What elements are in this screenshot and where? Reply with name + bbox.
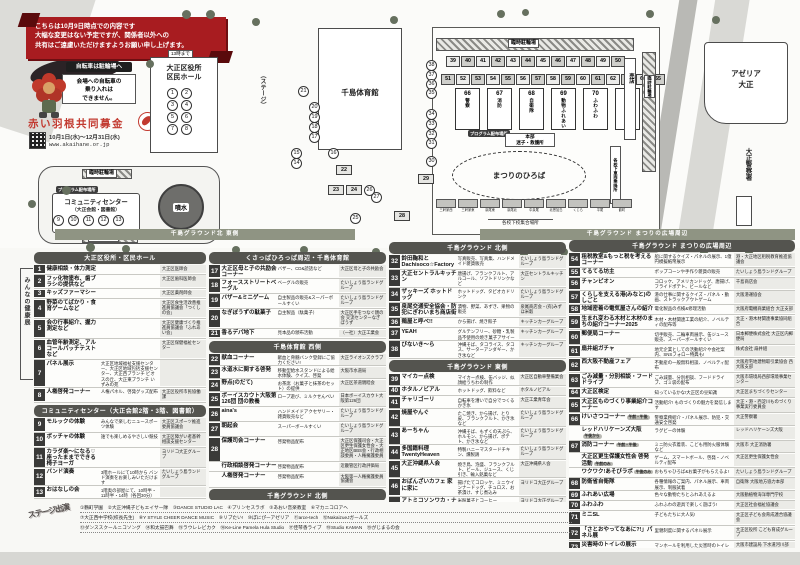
booth-org: 大正沖縄県人会 bbox=[519, 461, 566, 477]
map-big-booth-69: 69動物ふれあい bbox=[551, 88, 576, 130]
map-circle-8: 8 bbox=[181, 124, 192, 135]
booth-title: 行政相談啓発コーナー bbox=[222, 463, 277, 469]
health-expo-band: みんなの健康展 bbox=[20, 268, 33, 380]
booth-row: 38 びないき〜ら 沖縄そば、タコライス、タコス、サーターアンダギー、かき氷など… bbox=[389, 341, 566, 359]
booth-title: チャンピオン bbox=[582, 279, 654, 285]
map-circle-13: 13 bbox=[113, 215, 124, 226]
booth-desc: 自転車を漕いで自分でつくるかき氷 bbox=[458, 396, 519, 408]
booth-row: 57 くらしを支える港(みなと)のしごと 港の仕事に関するクイズ・パネル・動画、… bbox=[569, 291, 795, 305]
booth-number: 35 bbox=[389, 303, 400, 316]
booth-org: たいしょう島ランドグループ bbox=[519, 255, 566, 268]
booth-title: 献血コーナー bbox=[222, 355, 277, 361]
booth-title: 地域密着の電気屋さんの紹介 bbox=[582, 306, 654, 312]
booth-org bbox=[160, 487, 206, 498]
map-circle-7: 7 bbox=[167, 124, 178, 135]
booth-org: キッチンカーグループ bbox=[519, 341, 566, 357]
booth-desc: バザー、CD&読話など bbox=[278, 265, 339, 278]
map-booth-39: 39 bbox=[446, 56, 460, 67]
booth-number: 18 bbox=[209, 279, 220, 292]
booth-org: たいしょう島ランドグループ bbox=[339, 294, 386, 307]
booth-title: マイカー点検 bbox=[402, 374, 457, 380]
tree-icon bbox=[146, 60, 154, 68]
ward-office-label: 大正区役所 区民ホール bbox=[151, 64, 217, 82]
booth-desc: ふわふわの遊具で楽しく遊ぼう! bbox=[655, 501, 735, 510]
booth-number: 8 bbox=[34, 389, 45, 402]
booth-row: 65 大正区ものづくり事業紹介コーナー 活動紹介! ものづくりの魅力を発信します… bbox=[569, 398, 795, 413]
booth-number: 73 bbox=[569, 542, 580, 548]
booth-desc: 警察業務紹介・パネル展示、防犯・交通安全啓発 bbox=[655, 413, 735, 425]
booth-org: レッドハリケーンズ大阪 bbox=[734, 427, 795, 439]
booth-desc: 自主製品の販売&スーパーボールすくい bbox=[278, 294, 339, 308]
booth-org: 大正工業青年会 bbox=[519, 397, 566, 408]
booth-row: 27 朝起会 スーパーボールすくい たいしょう島ランドグループ bbox=[209, 422, 386, 437]
booth-org: 大正区子ども会育成連合協議会 bbox=[734, 512, 795, 525]
booth-row: 44 多国籍料理 TwentyHeaven 特製ハニーマスタードチキン、燻製鶏 … bbox=[389, 445, 566, 460]
booth-title: aina's bbox=[222, 408, 277, 414]
booth-row: 7 パネル展示 大正区地域福祉支援センター、大正区地域包括支援センター、大正西ブ… bbox=[34, 360, 206, 388]
map-booth-44: 44 bbox=[521, 56, 535, 67]
booth-number: 20 bbox=[209, 310, 220, 328]
booth-desc: ミニ防火衣着装、こども用防火服体験など bbox=[655, 441, 735, 453]
booth-title: びないき〜ら bbox=[402, 342, 457, 348]
section-header: 千島グラウンド まつりの広場周辺 bbox=[569, 240, 795, 252]
booth-number: 54 bbox=[569, 253, 580, 266]
booth-title: 鈴田鞠和とDachisoco☆Factory bbox=[402, 256, 457, 268]
booth-row: 18 フォースストリートベーグル ベーグルの販売 たいしょう島ランドグループ bbox=[209, 279, 386, 294]
map-mark-29: 29 bbox=[418, 174, 434, 184]
time-tag: 午前・午後 bbox=[627, 415, 650, 419]
map-booth-49: 49 bbox=[596, 56, 610, 67]
booth-title: バンド演奏 bbox=[47, 469, 100, 475]
stage-program-line: ⑬ダンススクールニコソング ⑭和太鼓巴舞 ⑮ラウレレビカク ⑯Ke-Line P… bbox=[80, 523, 572, 533]
map-big-booth-67: 67消防 bbox=[487, 88, 512, 130]
school-tent: 泉尾東 bbox=[480, 199, 500, 213]
map-booth-53: 53 bbox=[471, 74, 485, 85]
booth-desc: ごみ減量、分別相談、フードドライブ、ゴミ袋の配布 bbox=[655, 373, 735, 387]
booth-title: 大正区検定 bbox=[582, 389, 654, 395]
booth-number: 40 bbox=[389, 387, 400, 395]
booth-title: 血管年齢測定、アルコールパッチテストなど bbox=[47, 340, 100, 358]
booth-desc: 1階奥の部屋にて、10時半・11時半・14時（各回30分） bbox=[101, 486, 160, 498]
booth-row: 39 マイカー点検 マイカー点検、缶バッジ、似顔絵うちわの制作 大正区自動車整備… bbox=[389, 373, 566, 386]
booth-org: 大阪府宅地建物取引業協会 西大阪支部 bbox=[734, 359, 795, 372]
booth-title: ミニSL bbox=[582, 512, 654, 518]
booth-org: 大正区健康づくり推進員協議会「ふれあい会」 bbox=[160, 320, 206, 338]
map-circle-9: 9 bbox=[53, 215, 64, 226]
booth-desc: 港の仕事に関するクイズ・パネル・動画、ストラックアウトゲーム bbox=[655, 291, 735, 304]
map-booth-41: 41 bbox=[476, 56, 490, 67]
booth-row: 43 あーちゃん 沖縄そば、もずくの天ぷら、ホルモン、から揚げ、ポテト、かき氷な… bbox=[389, 427, 566, 445]
booth-desc: 誰でも楽しめるやさしい競技 bbox=[101, 433, 160, 447]
community-center-building: コミュニティセンター （大正会館・図書館） 910111213 bbox=[52, 193, 140, 233]
community-center-label: コミュニティセンター bbox=[53, 197, 139, 206]
booth-org: 大正区自動車整備業会 bbox=[519, 374, 566, 385]
booth-number: 45 bbox=[389, 461, 400, 477]
booth-number: 23 bbox=[209, 367, 220, 378]
booth-row: 60 郵便局コーナー 切手販売、二輪車両展示、缶ジュース販売、スーパーボールすく… bbox=[569, 330, 795, 345]
booth-number: 22 bbox=[209, 354, 220, 365]
booth-row: 36 鶏屋と呼べ!! から揚げ、焼き餃子 キッチンカーグループ bbox=[389, 318, 566, 328]
map-circle-12: 12 bbox=[98, 215, 109, 226]
booth-org: 大正区役所 こども育成グループ bbox=[734, 527, 795, 540]
tree-icon bbox=[497, 10, 505, 18]
booth-org: 大阪市 大正消防署 bbox=[734, 441, 795, 452]
ward-office-building: 大正区役所 区民ホール 12345678 bbox=[150, 57, 218, 153]
booth-number: 39 bbox=[389, 374, 400, 385]
booth-org: 大正区医師会 bbox=[160, 265, 206, 273]
booth-title: モルックの体験 bbox=[47, 419, 100, 425]
list-column-4: 千島グラウンド まつりの広場周辺 54 租税教室&もっと税を考えるコーナー 船に… bbox=[569, 238, 795, 548]
ground-strip-left: 千島グラウンド北 東側 bbox=[55, 229, 355, 240]
booth-number: 41 bbox=[389, 397, 400, 408]
booth-desc: お茶席（お菓子と抹茶のセット）の提供 bbox=[278, 379, 339, 391]
booth-org: 泉尾商店会・(有)みずほ米穀 bbox=[519, 303, 566, 316]
booth-row: 54 租税教室&もっと税を考えるコーナー 船に関するクイズ・パネルの展示、1億円… bbox=[569, 253, 795, 268]
booth-title: おはなしの会 bbox=[47, 487, 100, 493]
map-booth-46: 46 bbox=[551, 56, 565, 67]
booth-desc: ハンドメイドアクセサリー・雑貨販売など bbox=[278, 407, 339, 421]
school-tent: 泉尾北 bbox=[502, 199, 522, 213]
gym-label: 千島体育館 bbox=[319, 87, 401, 98]
booth-desc: ホットドッグ、飲料など bbox=[458, 386, 519, 395]
booth-desc: 焼き鳥、泡盛、フランクフルト、ビール、ジュース、くじ引き、輸入銘菓など bbox=[458, 460, 519, 477]
booth-title: 大正沖縄県人会 bbox=[402, 461, 457, 467]
booth-desc: ホットドッグ、タピオカドリンク bbox=[458, 288, 519, 302]
booth-number bbox=[209, 473, 220, 486]
booth-row: ワクワク!あそびラボ午後のみ おもちゃひろば&お菓子がもらえるよ! たいしょう島… bbox=[569, 468, 795, 478]
booth-desc: グルテンフリー、砂糖・乳製品不使用の焼き菓子アサイー bbox=[458, 328, 519, 340]
booth-row: 9 モルックの体験 みんなで楽しむニュースポーツ体験 大正区スポーツ推進委員協議… bbox=[34, 418, 206, 433]
mascot-flower-character bbox=[26, 66, 72, 120]
booth-title: ワクワク!あそびラボ午後のみ bbox=[582, 469, 654, 475]
booth-desc: 不動産の一般無料相談、ノベルティ配布 bbox=[655, 358, 735, 372]
map-mark-17: 17 bbox=[309, 132, 320, 143]
booth-row: 12 バンド演奏 3階ホールにて10時から バンド演奏をお楽しみいただけます た… bbox=[34, 468, 206, 486]
booth-title: バザー&ミニゲーム bbox=[222, 295, 277, 301]
booth-org: ヨリドコ大正グループ bbox=[160, 448, 206, 466]
map-circle-2: 2 bbox=[181, 88, 192, 99]
map-booth-61: 61 bbox=[591, 74, 605, 85]
booth-org: たいしょう島ランドグループ bbox=[519, 446, 566, 459]
booth-row: 59 生まれ変わる木材と木材のまちの紹介コーナー2025 木材・木材関連工業の紹… bbox=[569, 315, 795, 330]
booth-number: 57 bbox=[569, 291, 580, 303]
booth-org: 大正区歯科医師会 bbox=[160, 275, 206, 287]
booth-number: 38 bbox=[389, 341, 400, 357]
booth-org: 大阪市環境局西部環境事業センター bbox=[734, 374, 795, 387]
booth-org: 大正区役所市民協働課 bbox=[160, 389, 206, 402]
booth-title: ふれあい広場 bbox=[582, 492, 654, 498]
booth-number: 64 bbox=[569, 389, 580, 397]
booth-row: 21 香るデパ地下 見本品の頒布活動 （一社）大正工業会 bbox=[209, 329, 386, 339]
tree-icon bbox=[646, 10, 654, 18]
booth-number: 4 bbox=[34, 300, 45, 318]
map-booth-59: 59 bbox=[561, 74, 575, 85]
gym-building: 千島体育館 bbox=[318, 28, 402, 150]
dropoff-label: 各校下車両乗降所 bbox=[610, 146, 621, 204]
map-booth-60: 60 bbox=[576, 74, 590, 85]
booth-org: 大正・港・西淀川ものづくり事業実行委員会 bbox=[734, 399, 795, 412]
school-tents: 三軒家西三軒家東泉尾東泉尾北中泉尾北恩加島くじら平尾鶴町 bbox=[436, 199, 632, 213]
booth-desc: ゲーム、スマートボール、啓発・ノベルティ配布 bbox=[655, 453, 735, 466]
time-tag: 午後から bbox=[583, 434, 602, 438]
notice-banner: こちらは10月9日時点での内容です 大幅な変更はない予定ですが、関係者以外への … bbox=[26, 17, 226, 59]
map-mark-16: 16 bbox=[328, 148, 339, 159]
map-circle-6: 6 bbox=[181, 112, 192, 123]
booth-number: 58 bbox=[569, 305, 580, 313]
map-mark-28: 28 bbox=[394, 211, 410, 221]
booth-number: 37 bbox=[389, 328, 400, 339]
list-column-1: 大正区役所・区民ホール 1 健康相談・体力測定 大正区医師会 2 フッ化物塗布、… bbox=[34, 250, 206, 500]
booth-desc bbox=[101, 319, 160, 338]
booth-number: 2 bbox=[34, 275, 45, 287]
community-center-sub: （大正会館・図書館） bbox=[53, 206, 139, 213]
booth-row: 70 ふわふわ ふわふわの遊具で楽しく遊ぼう! 大正区社会福祉協議会 bbox=[569, 501, 795, 511]
booth-row: 5 会の行事紹介、握力測定など 大正区健康づくり推進員協議会「ふれあい会」 bbox=[34, 319, 206, 339]
booth-desc: みんなで楽しむニュースポーツ体験 bbox=[101, 418, 160, 432]
booth-desc: 唐揚げ、フランクフルト、アルコール、ソフトドリンクなど bbox=[458, 270, 519, 287]
booth-row: 58 地域密着の電気屋さんの紹介 電化製品の点検&修理活動 大阪府電機商業組合 … bbox=[569, 305, 795, 315]
booth-title: カラダ楽〜になる♡座ったままでできる椅子ヨーガ bbox=[47, 449, 100, 467]
booth-org: 株式会社 扇井組 bbox=[734, 346, 795, 357]
booth-row: 62 西大阪不動産フェア 不動産の一般無料相談、ノベルティ配布 大阪府宅地建物取… bbox=[569, 358, 795, 373]
booth-title: 大正区母と子の共励会コーナー bbox=[222, 266, 277, 278]
booth-title: 防衛省自衛隊 bbox=[582, 479, 654, 485]
booth-desc: 里親制度に関するパネル展示 bbox=[655, 526, 735, 540]
booth-org: 大正区手をつなぐ親の会 交流センターなぎぼうず bbox=[339, 310, 386, 328]
map-mark-21: 21 bbox=[298, 86, 309, 97]
map-booth-57: 57 bbox=[531, 74, 545, 85]
booth-org: 大正区更生保護女性会 bbox=[734, 454, 795, 466]
bike-parking-label-v: 臨時駐輪場 bbox=[644, 75, 655, 98]
booth-number: 55 bbox=[569, 268, 580, 276]
booth-title: おばんざいカフェ 家に家に bbox=[402, 479, 457, 491]
qr-code bbox=[29, 132, 46, 149]
booth-row: 41 チャリゴーリ 自転車を漕いで自分でつくるかき氷 大正工業青年会 bbox=[389, 396, 566, 409]
booth-number: 10 bbox=[34, 433, 45, 446]
booth-title: ザッキーズ ホットドッグ bbox=[402, 289, 457, 301]
fountain-label: 噴水 bbox=[173, 203, 189, 212]
map-booth-56: 56 bbox=[516, 74, 530, 85]
booth-desc: 子どもたちに大人気! bbox=[655, 511, 735, 525]
map-circle-11: 11 bbox=[83, 215, 94, 226]
program-tag: プログラム配布場所 bbox=[468, 130, 510, 137]
booth-org: たいしょう島ランドグループ bbox=[519, 410, 566, 426]
booth-title: 災害時のトイレの展示 bbox=[582, 542, 654, 548]
booth-number: 43 bbox=[389, 428, 400, 444]
booth-row: 69 ふれあい広場 色々な動物たちとふれあえるよ 大阪動植物海洋専門学校 bbox=[569, 491, 795, 501]
tree-icon bbox=[712, 16, 720, 24]
booth-number: 6 bbox=[34, 340, 45, 358]
booth-desc: 献血と骨髄バンク登録にご協力ください! bbox=[278, 354, 339, 366]
akaihane-url: www.akaihane.or.jp bbox=[49, 141, 109, 148]
booth-desc: 大正区地域福祉支援センター、大正区地域包括支援センター、大正西ブランチ ビオスの… bbox=[101, 360, 160, 387]
bike-parking-label: 臨時駐輪場 bbox=[508, 39, 539, 48]
booth-row: 8 人権啓発コーナー 人権パネル、啓発グッズ配布 大正区役所市民協働課 bbox=[34, 388, 206, 403]
school-tent: 鶴町 bbox=[612, 199, 632, 213]
booth-desc: 活動紹介! ものづくりの魅力を発信します bbox=[655, 398, 735, 412]
police-label: 大正警察署 bbox=[742, 148, 752, 181]
booth-row: 47 アトミコソンワカ・ナンクルナイサー35くえもん 米粉菓子とコーヒー ヨリド… bbox=[389, 497, 566, 503]
fountain: 噴水 bbox=[158, 184, 204, 230]
booth-title: 郵便局コーナー bbox=[582, 331, 654, 337]
booth-org: たいしょう島ランドグループ bbox=[339, 423, 386, 436]
booth-desc bbox=[101, 275, 160, 288]
booth-number: 19 bbox=[209, 294, 220, 307]
stage-program-footnote: ①鶴町学園 ②大正沖縄子どもエイサー隊 ③DANCE STUDIO LAC ④プ… bbox=[80, 503, 572, 533]
time-tag: 午後のみ bbox=[634, 470, 653, 474]
booth-number: 47 bbox=[389, 497, 400, 502]
booth-title: キッズファーマシー bbox=[47, 290, 100, 296]
tree-icon bbox=[522, 9, 529, 16]
list-column-2: くさっぱひろっぱ周辺・千島体育館 17 大正区母と子の共励会コーナー バザー、C… bbox=[209, 250, 386, 500]
booth-org: ホタルノビアル bbox=[519, 387, 566, 395]
map-booth-45: 45 bbox=[536, 56, 550, 67]
booth-number: 63 bbox=[569, 374, 580, 387]
booth-number: 33 bbox=[389, 270, 400, 286]
list-column-3: 千島グラウンド 北側 32 鈴田鞠和とDachisoco☆Factory 写真販… bbox=[389, 240, 566, 502]
stage-label: （ステージ） bbox=[258, 72, 267, 108]
booth-desc: 啓発物品配布 bbox=[278, 437, 339, 461]
booth-number: 32 bbox=[389, 255, 400, 268]
tree-icon bbox=[252, 18, 260, 26]
tree-icon bbox=[28, 200, 36, 208]
scanned-festival-flyer: こちらは10月9日時点での内容です 大幅な変更はない予定ですが、関係者以外への … bbox=[0, 0, 800, 565]
booth-desc: 知っているかな!大正区の豆知識 bbox=[655, 388, 735, 397]
section-header: 千島グラウンド 東側 bbox=[389, 360, 566, 372]
booth-org: たいしょう島ランドグループ bbox=[339, 408, 386, 421]
booth-desc: 人権パネル、啓発グッズ配布 bbox=[101, 388, 160, 402]
booth-org: 大正区母と子の共励会 bbox=[339, 265, 386, 277]
booth-desc: 啓発物品配布 bbox=[278, 462, 339, 471]
booth-row-39-50: 394041424344454647484950 bbox=[446, 56, 625, 67]
booth-title: くらしを支える港(みなと)のしごと bbox=[582, 292, 654, 304]
section-header: コミュニティセンター（大正会館2階・3階、図書館） bbox=[34, 405, 206, 417]
booth-title: けいさつコーナー午前・午後 bbox=[582, 414, 654, 420]
booth-desc: 電化製品の点検&修理活動 bbox=[655, 305, 735, 314]
booth-number: 27 bbox=[209, 423, 220, 436]
school-tent: 中泉尾 bbox=[524, 199, 544, 213]
map-mark-25: 25 bbox=[350, 213, 361, 224]
booth-title: 大正セントラルキッチン bbox=[402, 271, 457, 283]
map-mark-30: 30 bbox=[426, 156, 437, 167]
map-booth-48: 48 bbox=[581, 56, 595, 67]
booth-number: 12 bbox=[34, 469, 45, 485]
booth-desc bbox=[101, 448, 160, 467]
booth-row: 45 大正沖縄県人会 焼き鳥、泡盛、フランクフルト、ビール、ジュース、くじ引き、… bbox=[389, 460, 566, 478]
booth-title: 野点(のだて) bbox=[222, 380, 277, 386]
booth-row: 17 大正区母と子の共励会コーナー バザー、CD&読話など 大正区母と子の共励会 bbox=[209, 265, 386, 279]
booth-desc bbox=[101, 289, 160, 298]
booth-title: 香るデパ地下 bbox=[222, 330, 277, 336]
school-tent: 三軒家西 bbox=[436, 199, 456, 213]
booth-title: 人権啓発コーナー bbox=[47, 389, 100, 395]
booth-org: 大阪市建設局 下水道河川部 bbox=[734, 542, 795, 548]
booth-org: 大正区社会福祉協議会 bbox=[734, 501, 795, 509]
booth-number: 3 bbox=[34, 290, 45, 298]
booth-row: 3 キッズファーマシー 大正区薬剤師会 bbox=[34, 289, 206, 299]
booth-desc: 見本品の頒布活動 bbox=[278, 329, 339, 338]
booth-desc: マンホールを利用した災害時のトイレの展示 bbox=[655, 541, 735, 548]
booth-desc bbox=[101, 339, 160, 358]
section-header: くさっぱひろっぱ周辺・千島体育館 bbox=[209, 252, 386, 264]
booth-org: たいしょう島ランドグループ bbox=[339, 279, 386, 292]
booth-number: 11 bbox=[34, 448, 45, 466]
booth-number: 26 bbox=[209, 408, 220, 421]
booth-row: 73 災害時のトイレの展示 マンホールを利用した災害時のトイレの展示 大阪市建設… bbox=[569, 541, 795, 548]
booth-org: たいしょう島ランドグループ bbox=[519, 288, 566, 301]
booth-number: 62 bbox=[569, 359, 580, 372]
booth-desc: 船に関するクイズ・パネルの展示、1億円模擬紙幣展示 bbox=[655, 253, 735, 267]
booth-row: レッドハリケーンズ大阪午後から ラグビーの体験 レッドハリケーンズ大阪 bbox=[569, 426, 795, 440]
booth-row: 4 野菜のてばかり・食育ゲームなど 大正区食生活改善推進員協議会「つくしの会」 bbox=[34, 299, 206, 319]
booth-number: 21 bbox=[209, 330, 220, 338]
booth-org: 日本郵便株式会社 大正区内郵便局 bbox=[734, 331, 795, 344]
map-booth-62: 62 bbox=[606, 74, 620, 85]
booth-desc: 写真販売、写真集、ハンドメイド雑貨販売 bbox=[458, 255, 519, 269]
map-booth-43: 43 bbox=[506, 56, 520, 67]
booth-desc: 自主製品（駄菓子） bbox=[278, 309, 339, 328]
booth-row: 25 ボーイスカウト大阪第126団 団の教養 ロープ遊び、ミルクせんべい 日本ボ… bbox=[209, 392, 386, 407]
booth-org: キッチンカーグループ bbox=[519, 318, 566, 326]
booth-number: 36 bbox=[389, 318, 400, 326]
booth-row: 10 ボッチャの体験 誰でも楽しめるやさしい競技 大正区障がい者基幹相談支援セン… bbox=[34, 433, 206, 448]
booth-org: ヨリドコ大正グループ bbox=[519, 497, 566, 502]
tent-bracket-label: 各校下校集合場所 bbox=[488, 219, 553, 226]
booth-row: 1 健康相談・体力測定 大正区医師会 bbox=[34, 265, 206, 275]
booth-title: フォースストリートベーグル bbox=[222, 280, 277, 292]
booth-row: 40 ホタルノビアル ホットドッグ、飲料など ホタルノビアル bbox=[389, 386, 566, 396]
booth-desc: 漬物、野菜、あずき、果物の販売 bbox=[458, 303, 519, 317]
booth-desc: 地元企業としての活動紹介や会社案内、SNSフォロー特典も! bbox=[655, 345, 735, 357]
booth-row: 22 献血コーナー 献血と骨髄バンク登録にご協力ください! 大正ライオンズクラブ bbox=[209, 354, 386, 367]
map-mark-22: 22 bbox=[336, 165, 352, 175]
booth-title: 生まれ変わる木材と木材のまちの紹介コーナー2025 bbox=[582, 316, 654, 328]
booth-title: チャリゴーリ bbox=[402, 397, 457, 403]
map-circle-10: 10 bbox=[68, 215, 79, 226]
azelia-building: アゼリア 大正 bbox=[704, 42, 788, 124]
booth-org: （一社）大正工業会 bbox=[339, 330, 386, 338]
booth-org: 大阪府電機商業組合 大正支部 bbox=[734, 305, 795, 313]
booth-row: 56 チャンピオン コロッケ、アメリカンドッグ、唐揚げ、フライドポテト、ビールな… bbox=[569, 278, 795, 291]
map-mark-31: 31 bbox=[426, 138, 437, 149]
booth-title: ボッチャの体験 bbox=[47, 434, 100, 440]
time-tag: 午前・午後 bbox=[616, 443, 639, 447]
booth-desc: 啓発物品配布 bbox=[278, 472, 339, 486]
booth-row: 19 バザー&ミニゲーム 自主製品の販売&スーパーボールすくい たいしょう島ラン… bbox=[209, 294, 386, 309]
booth-title: 朝起会 bbox=[222, 423, 277, 429]
booth-row: 人権啓発コーナー 啓発物品配布 大阪第一人権擁護委員協議会 bbox=[209, 472, 386, 487]
booth-row: 66 けいさつコーナー午前・午後 警察業務紹介・パネル展示、防犯・交通安全啓発 … bbox=[569, 413, 795, 426]
booth-desc: 色々な動物たちとふれあえるよ bbox=[655, 491, 735, 500]
map-booth-55: 55 bbox=[501, 74, 515, 85]
booth-desc: コロッケ、アメリカンドッグ、唐揚げ、フライドポテト、ビールなど bbox=[655, 278, 735, 290]
akaihane-title: 赤い羽根共同募金 bbox=[28, 116, 124, 131]
booth-title: 人権啓発コーナー bbox=[222, 473, 277, 479]
booth-row: 20 なぎぼうずの駄菓子 自主製品（駄菓子） 大正区手をつなぐ親の会 交流センタ… bbox=[209, 309, 386, 329]
booth-desc: 沖縄そば、もずくの天ぷら、ホルモン、から揚げ、ポテト、かき氷など bbox=[458, 427, 519, 444]
booth-row: 33 大正セントラルキッチン 唐揚げ、フランクフルト、アルコール、ソフトドリンク… bbox=[389, 270, 566, 288]
bike-parking-strip bbox=[642, 52, 656, 172]
booth-number: 66 bbox=[569, 414, 580, 425]
booth-row: 23 水道水に関する啓発 移動型給水スタンドによる給水体験、クイズ、啓発 大阪市… bbox=[209, 366, 386, 379]
booth-row: 35 泉尾交通安全協会・防犯にぎわいまち商店街 漬物、野菜、あずき、果物の販売 … bbox=[389, 303, 566, 318]
festival-plaza: まつりのひろば bbox=[452, 151, 586, 200]
booth-desc bbox=[101, 265, 160, 274]
booth-title: ふわふわ bbox=[582, 502, 654, 508]
booth-desc: 木材・木材関連工業の紹介、ノベルティの配布等 bbox=[655, 315, 735, 329]
map-big-booth-68: 68自衛隊 bbox=[519, 88, 544, 130]
tree-icon bbox=[182, 10, 191, 19]
